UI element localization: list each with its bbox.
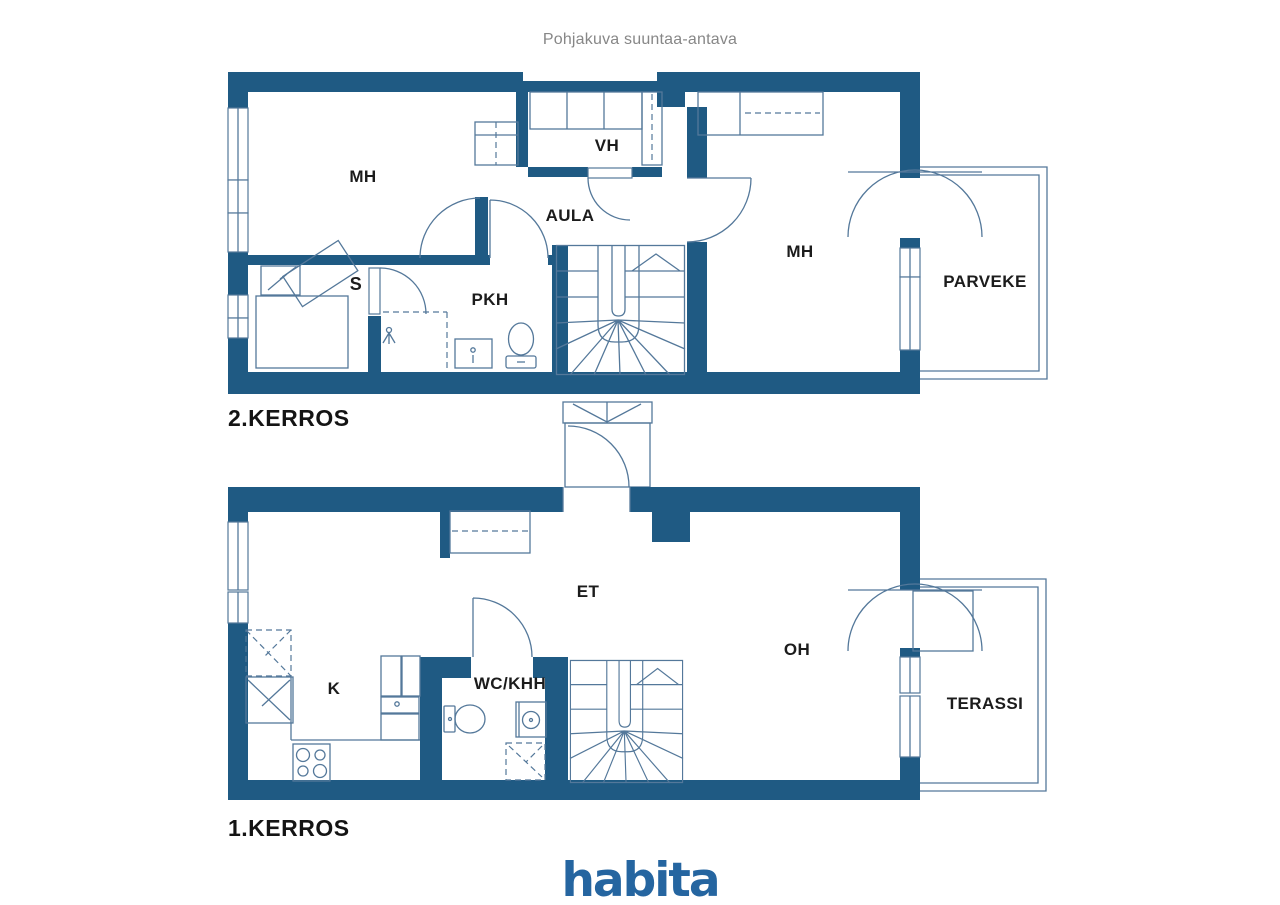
room-label-s: S [350,274,362,294]
balcony-door-arc [848,170,982,237]
floor1-doors [473,584,982,657]
sink-icon [455,339,492,368]
wc-door-arc [473,598,532,657]
washing-machine-icon [516,702,546,737]
sauna-door-arc [380,268,426,314]
sauna-heater-icon [261,266,300,295]
room-label-pkh: PKH [471,290,508,309]
habita-logo: habita [0,853,1280,905]
floor-1-label: 1.KERROS [228,815,350,842]
room-label-mh2: MH [786,242,813,261]
floor-1-plan: ET K WC/KHH OH TERASSI [228,487,1046,800]
floor-2-plan: MH VH AULA MH S PKH PARVEKE [228,72,1047,394]
wc-fixtures [444,702,546,780]
entrance-vestibule [563,402,652,487]
room-label-k: K [328,679,341,698]
floor1-walls [228,487,920,800]
floor1-windows [228,487,920,757]
floor2-walls [228,72,920,394]
toilet-icon [444,705,485,733]
pkh-fixtures [383,312,536,368]
room-label-vh: VH [595,136,619,155]
hall-closet [450,511,530,553]
stove-icon [293,744,330,781]
floor-2-label: 2.KERROS [228,405,350,432]
sauna-door-leaf [369,268,380,314]
cabinet-icon [402,656,420,696]
floor2-windows [228,108,920,350]
door-leaf [588,168,632,178]
room-label-mh: MH [349,167,376,186]
shower-icon [383,328,395,345]
terrace-door-frame [913,591,973,651]
terrace-outline [920,579,1046,791]
kitchen-sink-icon [381,697,419,740]
room-label-wc-khh: WC/KHH [474,674,546,693]
kitchen-fixtures [246,630,420,781]
room-label-et: ET [577,582,600,601]
entry-opening [563,487,630,512]
floor2-doors [369,168,982,314]
door-arc [490,200,548,258]
door-arc [687,178,751,242]
room-label-aula: AULA [546,206,595,225]
sauna-bench-upper [283,240,358,306]
floorplan-drawing: MH VH AULA MH S PKH PARVEKE [0,0,1280,905]
dishwasher-icon [381,656,401,696]
floorplan-page: Pohjakuva suuntaa-antava [0,0,1280,905]
entry-door-arc [568,426,629,487]
room-label-parveke: PARVEKE [943,272,1026,291]
appliance-reservation [506,743,545,780]
room-label-terassi: TERASSI [947,694,1023,713]
terrace-door-arc [848,584,982,651]
room-label-oh: OH [784,640,810,659]
toilet-icon [506,323,536,368]
door-arc [420,198,480,258]
